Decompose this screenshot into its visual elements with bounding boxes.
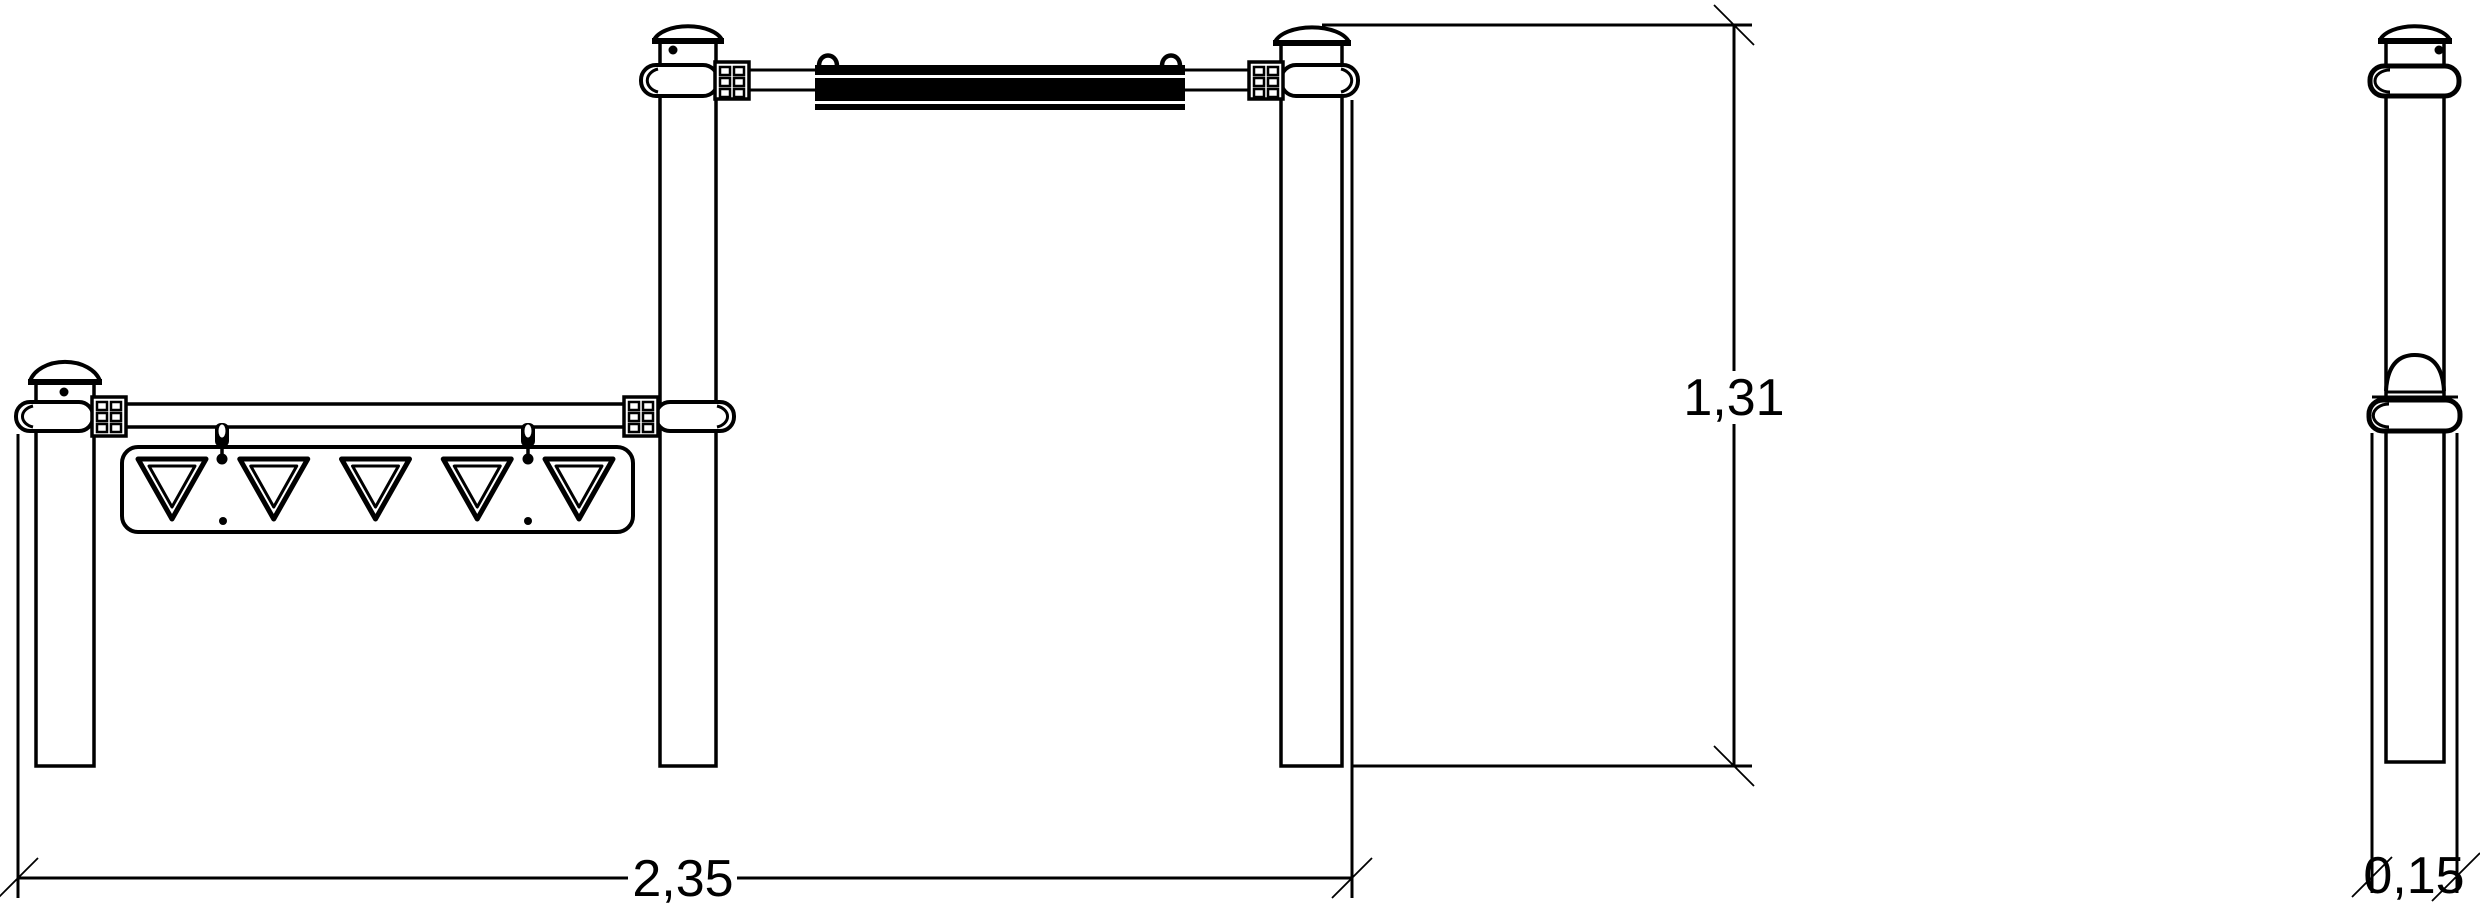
low-bar-right-sleeve [656, 402, 734, 431]
clamp-bolt-square [1268, 89, 1278, 97]
clip-slot [219, 425, 226, 438]
clamp-bolt-square [720, 67, 730, 75]
clamp-bolt-square [1254, 89, 1264, 97]
low-bar-left-sleeve [16, 402, 93, 431]
cap-dot [2435, 46, 2444, 55]
clamp-bolt-square [734, 67, 744, 75]
clamp-bolt-square [1254, 78, 1264, 86]
clamp-bolt-square [720, 78, 730, 86]
clamp-bolt-square [643, 402, 653, 410]
side-lower-cap-dome [2386, 355, 2444, 391]
clamp-bolt-square [97, 424, 107, 432]
clamp-bolt-square [97, 402, 107, 410]
clamp-bolt-square [643, 424, 653, 432]
panel-rivet-dot [219, 517, 227, 525]
clamp-bolt-square [97, 413, 107, 421]
clamp-bolt-square [111, 413, 121, 421]
clamp-bolt-square [734, 89, 744, 97]
panel-rivet-dot [524, 517, 532, 525]
clamp-bolt-square [720, 89, 730, 97]
clamp-bolt-square [629, 413, 639, 421]
clip-slot [525, 425, 532, 438]
cap-dot [60, 388, 69, 397]
short-post-left [36, 379, 94, 766]
panel-hanger-clip-left [215, 423, 229, 465]
clip-bolt [523, 454, 534, 465]
low-bar-left-clamp [92, 397, 126, 436]
clamp-bolt-square [1254, 67, 1264, 75]
depth-dimension-label: 0,15 [2363, 847, 2464, 905]
clamp-bolt-square [111, 402, 121, 410]
pullup-bar-right-clamp [1249, 62, 1283, 99]
clamp-bolt-square [643, 413, 653, 421]
equipment-elevation-drawing: 1,31 2,35 0,15 [0, 0, 2480, 921]
height-dimension-label: 1,31 [1683, 369, 1784, 427]
clamp-bolt-square [734, 78, 744, 86]
clip-bolt [217, 454, 228, 465]
panel-hanger-clip-right [521, 423, 535, 465]
clamp-bolt-square [111, 424, 121, 432]
dimension-depth: 0,15 [2352, 847, 2480, 905]
tall-post-right [1281, 40, 1342, 766]
sign-panel [122, 447, 633, 532]
clamp-bolt-square [1268, 78, 1278, 86]
width-dimension-label: 2,35 [632, 850, 733, 908]
clamp-bolt-square [629, 424, 639, 432]
technical-drawing-canvas: 1,31 2,35 0,15 [0, 0, 2480, 921]
pullup-bar-left-clamp [715, 62, 749, 99]
low-bar-right-clamp [624, 397, 658, 436]
clamp-bolt-square [1268, 67, 1278, 75]
clamp-bolt-square [629, 402, 639, 410]
cap-dot [669, 46, 678, 55]
